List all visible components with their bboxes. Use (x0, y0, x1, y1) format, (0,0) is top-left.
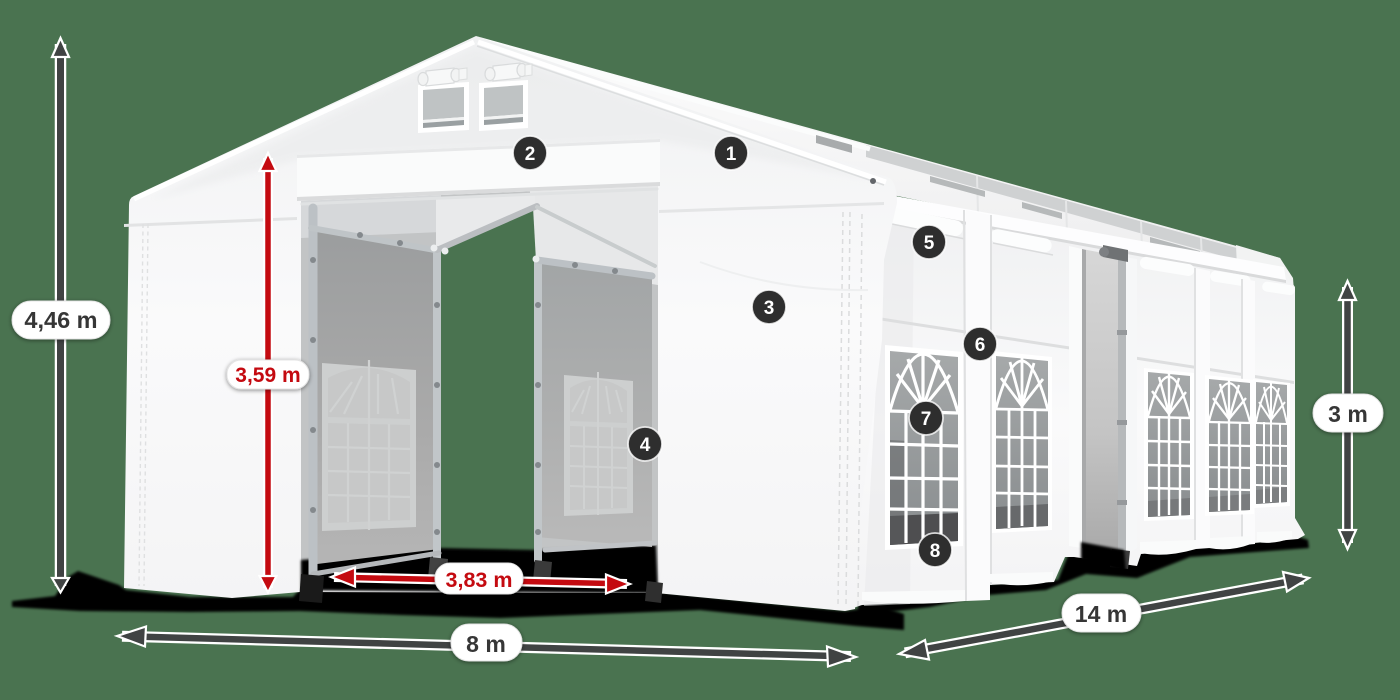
svg-text:4: 4 (640, 435, 651, 456)
svg-text:6: 6 (975, 335, 986, 356)
svg-text:8: 8 (930, 541, 941, 562)
svg-text:1: 1 (726, 144, 737, 165)
svg-text:3,59 m: 3,59 m (235, 364, 300, 387)
svg-text:7: 7 (921, 409, 932, 430)
svg-text:5: 5 (924, 233, 935, 254)
svg-text:2: 2 (525, 144, 536, 165)
svg-text:14 m: 14 m (1075, 601, 1127, 627)
svg-text:3: 3 (764, 298, 775, 319)
svg-text:8 m: 8 m (466, 631, 506, 657)
svg-text:3,83 m: 3,83 m (446, 568, 513, 592)
svg-text:3 m: 3 m (1328, 401, 1368, 427)
svg-text:4,46 m: 4,46 m (24, 307, 97, 333)
